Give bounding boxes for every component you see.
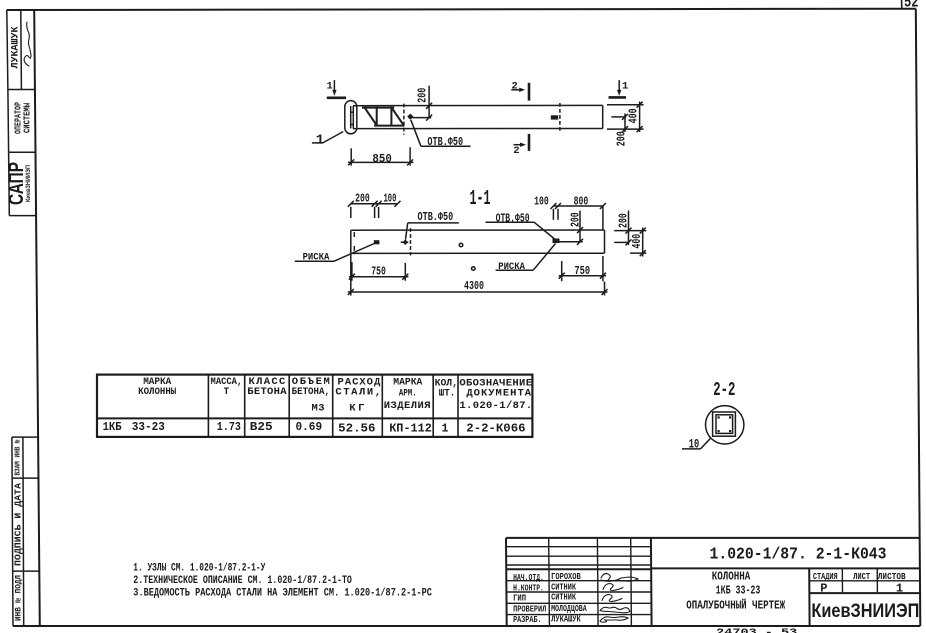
svg-text:ИНВ № ПОДЛ: ИНВ № ПОДЛ bbox=[15, 575, 24, 621]
svg-text:100: 100 bbox=[384, 192, 397, 206]
svg-text:ГОРОХОВ: ГОРОХОВ bbox=[551, 571, 581, 582]
svg-text:1КБ: 1КБ bbox=[103, 420, 122, 434]
svg-text:1: 1 bbox=[622, 81, 628, 93]
svg-text:3.ВЕДОМОСТЬ РАСХОДА СТАЛИ НА Э: 3.ВЕДОМОСТЬ РАСХОДА СТАЛИ НА ЭЛЕМЕНТ СМ.… bbox=[133, 587, 432, 599]
svg-text:2: 2 bbox=[512, 81, 518, 93]
svg-text:БЕТОНА: БЕТОНА bbox=[247, 386, 287, 398]
svg-text:В25: В25 bbox=[250, 420, 273, 434]
svg-text:24703 - 53: 24703 - 53 bbox=[716, 627, 797, 633]
svg-text:БЕТОНА,: БЕТОНА, bbox=[292, 386, 330, 398]
svg-text:ЛУКАШУК: ЛУКАШУК bbox=[9, 26, 21, 69]
svg-text:1: 1 bbox=[316, 133, 324, 149]
svg-text:1.020-1/87. 2-1-К043: 1.020-1/87. 2-1-К043 bbox=[710, 546, 887, 565]
svg-text:Т: Т bbox=[224, 386, 230, 398]
svg-text:1: 1 bbox=[896, 582, 903, 596]
svg-text:ОТВ.Ф50: ОТВ.Ф50 bbox=[496, 211, 530, 225]
svg-text:ДОКУМЕНТА: ДОКУМЕНТА bbox=[466, 388, 531, 400]
svg-text:КиевЗНИИЭП: КиевЗНИИЭП bbox=[26, 165, 32, 202]
svg-text:2-2-К066: 2-2-К066 bbox=[466, 422, 525, 436]
svg-text:КГ: КГ bbox=[349, 403, 364, 415]
svg-text:КОЛОННЫ: КОЛОННЫ bbox=[138, 386, 176, 398]
svg-text:СИСТЕМЫ: СИСТЕМЫ bbox=[22, 103, 32, 133]
svg-text:2: 2 bbox=[513, 145, 519, 157]
svg-text:200: 200 bbox=[616, 213, 630, 228]
svg-text:АРМ.: АРМ. bbox=[399, 388, 417, 400]
svg-text:52: 52 bbox=[904, 0, 919, 12]
svg-text:750: 750 bbox=[371, 264, 386, 278]
svg-text:ГИП: ГИП bbox=[513, 593, 526, 604]
svg-text:200: 200 bbox=[614, 131, 628, 146]
svg-text:ОТВ.Ф50: ОТВ.Ф50 bbox=[427, 135, 463, 149]
svg-text:СТАДИЯ: СТАДИЯ bbox=[813, 572, 838, 582]
svg-text:850: 850 bbox=[372, 152, 391, 166]
svg-text:ШТ.: ШТ. bbox=[439, 388, 456, 400]
svg-text:4300: 4300 bbox=[464, 279, 484, 293]
svg-text:0.69: 0.69 bbox=[296, 420, 323, 434]
svg-text:Р: Р bbox=[820, 582, 827, 596]
svg-text:1: 1 bbox=[442, 422, 449, 436]
svg-text:СИТНИК: СИТНИК bbox=[551, 592, 576, 603]
svg-text:200: 200 bbox=[416, 88, 430, 103]
svg-text:1-1: 1-1 bbox=[470, 188, 491, 211]
svg-text:400: 400 bbox=[630, 234, 644, 249]
svg-text:КиевЗНИИЭП: КиевЗНИИЭП bbox=[811, 601, 919, 622]
svg-text:КП-112: КП-112 bbox=[389, 422, 432, 436]
svg-text:ПРОВЕРИЛ: ПРОВЕРИЛ bbox=[513, 604, 546, 615]
svg-text:ИЗДЕЛИЯ: ИЗДЕЛИЯ bbox=[384, 400, 431, 412]
svg-text:РИСКА: РИСКА bbox=[498, 261, 525, 273]
svg-text:100: 100 bbox=[534, 194, 549, 208]
svg-text:ОТВ.Ф50: ОТВ.Ф50 bbox=[418, 210, 454, 224]
svg-text:1.73: 1.73 bbox=[217, 420, 241, 434]
svg-text:2-2: 2-2 bbox=[713, 379, 735, 401]
svg-text:1КБ 33-23: 1КБ 33-23 bbox=[716, 584, 761, 598]
svg-text:ПОДПИСЬ И ДАТА: ПОДПИСЬ И ДАТА bbox=[13, 483, 24, 566]
svg-text:1.020-1/87.: 1.020-1/87. bbox=[459, 400, 532, 412]
svg-text:800: 800 bbox=[574, 194, 589, 208]
svg-text:1: 1 bbox=[327, 81, 333, 93]
svg-text:САПР: САПР bbox=[5, 162, 28, 205]
svg-text:НАЧ.ОТД.: НАЧ.ОТД. bbox=[513, 572, 544, 583]
svg-text:ЛИСТ: ЛИСТ bbox=[853, 572, 870, 582]
svg-text:1. УЗЛЫ СМ. 1.020-1/87.2-1-У: 1. УЗЛЫ СМ. 1.020-1/87.2-1-У bbox=[133, 563, 265, 575]
svg-text:ОПАЛУБОЧНЫЙ ЧЕРТЕЖ: ОПАЛУБОЧНЫЙ ЧЕРТЕЖ bbox=[686, 598, 785, 613]
svg-text:2.ТЕХНИЧЕСКОЕ ОПИСАНИЕ СМ. 1.0: 2.ТЕХНИЧЕСКОЕ ОПИСАНИЕ СМ. 1.020-1/87.2-… bbox=[133, 575, 352, 587]
svg-text:400: 400 bbox=[627, 108, 641, 123]
svg-text:10: 10 bbox=[689, 436, 700, 451]
svg-text:ЛИСТОВ: ЛИСТОВ bbox=[878, 572, 906, 582]
svg-text:РИСКА: РИСКА bbox=[303, 251, 330, 263]
svg-text:ВЗАМ ИНВ №: ВЗАМ ИНВ № bbox=[15, 439, 23, 475]
svg-text:33-23: 33-23 bbox=[132, 420, 165, 434]
svg-text:М3: М3 bbox=[312, 403, 325, 415]
svg-text:РАЗРАБ.: РАЗРАБ. bbox=[513, 614, 542, 625]
svg-text:КОЛОННА: КОЛОННА bbox=[712, 570, 751, 584]
svg-text:ЛУКАШУК: ЛУКАШУК bbox=[551, 614, 581, 625]
svg-text:52.56: 52.56 bbox=[338, 422, 375, 436]
svg-text:МОЛОДЦОВА: МОЛОДЦОВА bbox=[551, 603, 587, 614]
svg-text:200: 200 bbox=[355, 192, 370, 206]
svg-text:200: 200 bbox=[568, 212, 582, 227]
svg-text:750: 750 bbox=[574, 264, 590, 278]
